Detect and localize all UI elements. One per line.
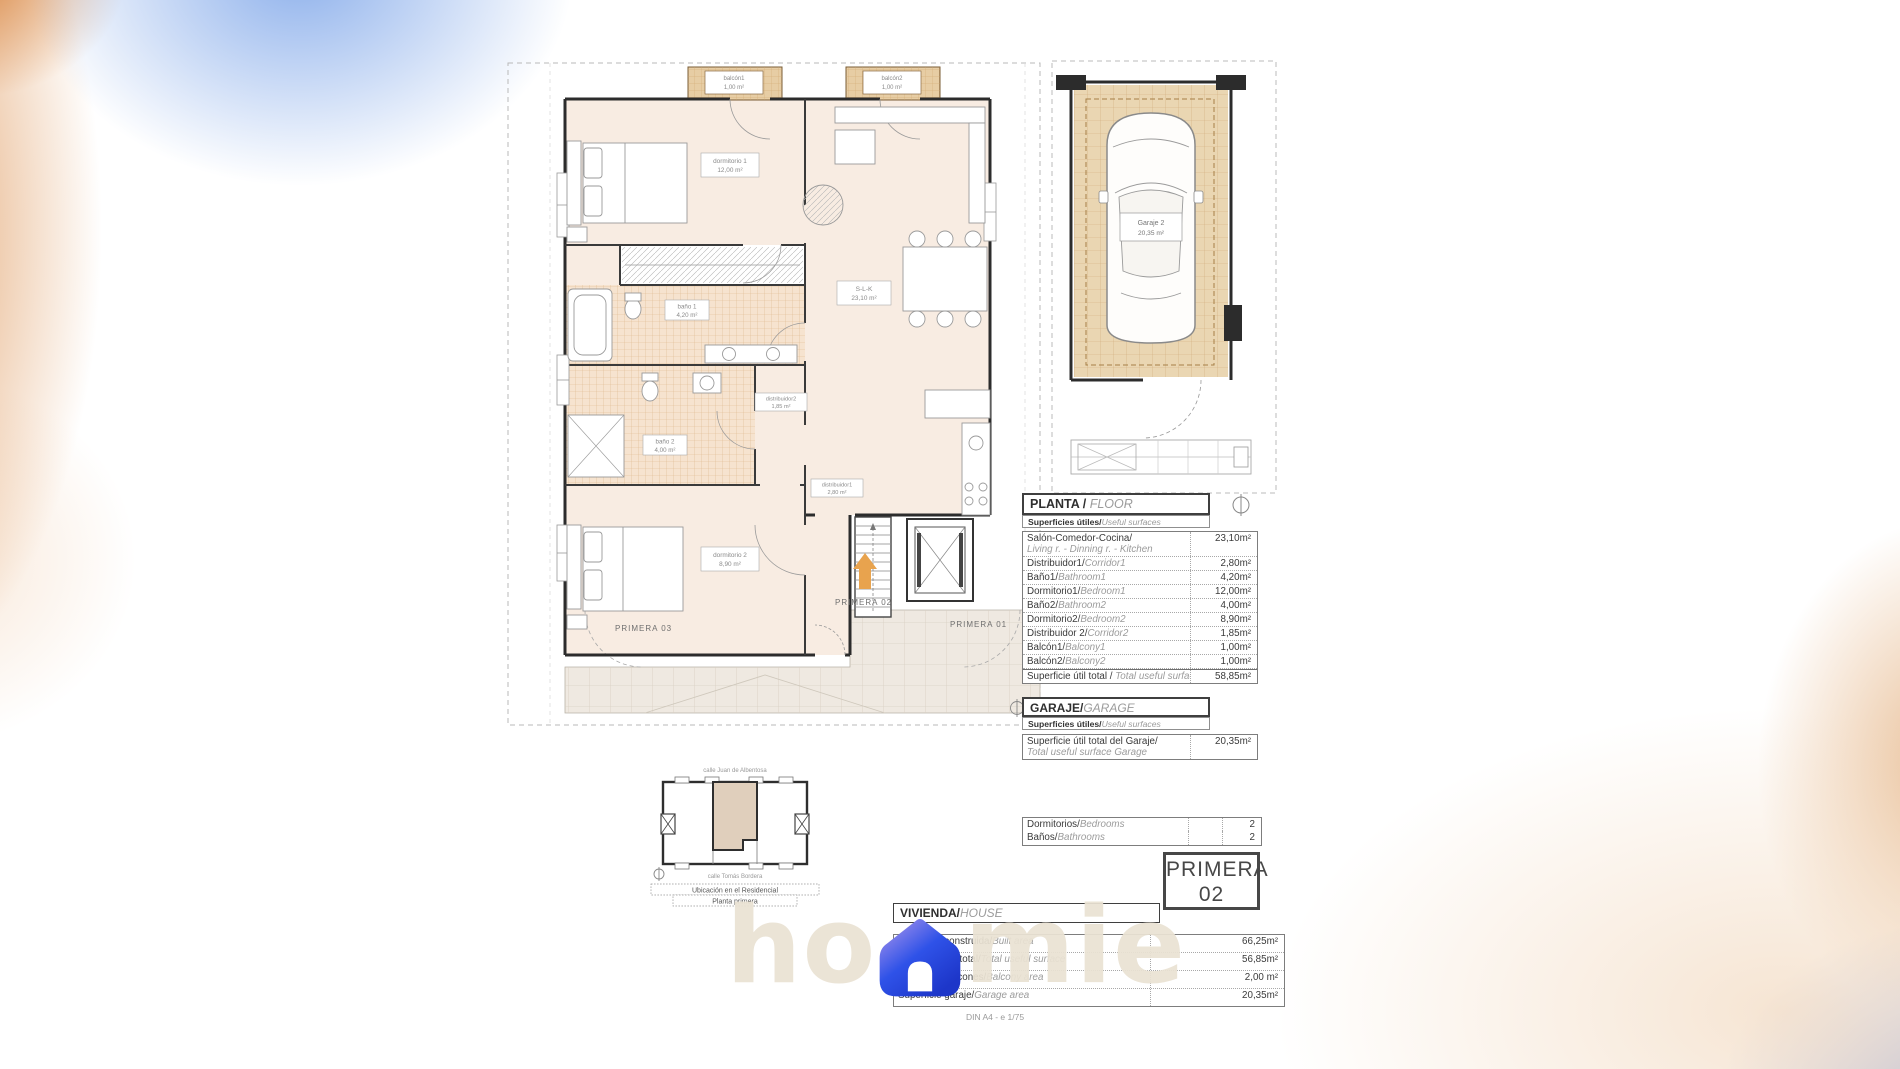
svg-text:4,00 m²: 4,00 m² [655, 447, 676, 454]
svg-text:1,00 m²: 1,00 m² [882, 85, 902, 91]
row-label-en: Balcony1 [1065, 642, 1105, 653]
svg-text:PRIMERA 03: PRIMERA 03 [615, 624, 672, 633]
svg-text:PRIMERA 01: PRIMERA 01 [950, 620, 1007, 629]
table-row: Superficie balcones/Balcony area 2,00 m² [894, 971, 1284, 989]
svg-text:PRIMERA 02: PRIMERA 02 [835, 598, 892, 607]
row-value: 1,00m² [1190, 655, 1257, 668]
bedrooms-count-row: Dormitorios/Bedrooms 2 [1022, 817, 1262, 832]
garaje-table: Superficie útil total del Garaje/ Total … [1022, 734, 1258, 760]
svg-text:1,85 m²: 1,85 m² [772, 404, 791, 410]
garage-plan-drawing: Garaje 2 20,35 m² [1048, 55, 1280, 500]
row-label-es: Superficie garaje/ [898, 990, 974, 1001]
street-label-top: calle Juan de Albentosa [703, 768, 767, 774]
planta-subtitle-en: Useful surfaces [1102, 517, 1161, 527]
row-label-es: Dormitorios/ [1027, 819, 1080, 830]
row-label-es: Superficie construida/ [898, 936, 992, 947]
row-label-es: Distribuidor1/ [1027, 558, 1085, 569]
caption-line-2: Planta primera [712, 899, 758, 906]
row-value: 2,00 m² [1150, 971, 1284, 988]
highlighted-unit [713, 782, 757, 850]
svg-text:balcón1: balcón1 [723, 76, 745, 82]
table-row: Dormitorio1/Bedroom1 12,00m² [1023, 585, 1257, 599]
svg-text:20,35 m²: 20,35 m² [1138, 230, 1165, 237]
svg-text:S-L-K: S-L-K [856, 286, 873, 293]
table-row: Balcón1/Balcony1 1,00m² [1023, 641, 1257, 655]
compass-icon [654, 867, 664, 881]
vivienda-table-header: VIVIENDA/HOUSE [893, 903, 1160, 923]
row-label-en: Living r. - Dinning r. - Kitchen [1027, 544, 1153, 555]
row-label-es: Superficie útil total/ [898, 954, 981, 965]
svg-text:23,10 m²: 23,10 m² [851, 295, 876, 302]
vivienda-title-en: HOUSE [960, 906, 1003, 920]
row-label-en: Corridor1 [1085, 558, 1126, 569]
garage-label: Garaje 2 20,35 m² [1120, 213, 1182, 241]
planta-title-es: PLANTA / [1030, 497, 1090, 511]
row-label-en: Bedroom1 [1080, 586, 1125, 597]
wardrobe [620, 245, 805, 285]
row-label-en: Bathroom1 [1058, 572, 1106, 583]
table-row: Baño1/Bathroom1 4,20m² [1023, 571, 1257, 585]
planta-subtitle-es: Superficies útiles/ [1028, 517, 1102, 527]
svg-text:2,80 m²: 2,80 m² [828, 490, 847, 496]
row-label-en: Corridor2 [1087, 628, 1128, 639]
row-label-en: Bedroom2 [1080, 614, 1125, 625]
planta-table-subtitle: Superficies útiles/Useful surfaces [1022, 515, 1210, 528]
compass-icon [1228, 492, 1254, 518]
table-row: Distribuidor1/Corridor1 2,80m² [1023, 557, 1257, 571]
unit-badge-number: 02 [1166, 882, 1257, 907]
svg-text:balcón2: balcón2 [881, 76, 903, 82]
row-value: 1,85m² [1190, 627, 1257, 640]
svg-text:4,20 m²: 4,20 m² [677, 312, 698, 319]
row-value: 23,10m² [1190, 532, 1257, 556]
svg-text:12,00 m²: 12,00 m² [717, 167, 742, 174]
svg-text:distribuidor2: distribuidor2 [766, 397, 796, 403]
table-row: Salón-Comedor-Cocina/ Living r. - Dinnin… [1023, 532, 1257, 557]
row-value: 4,20m² [1190, 571, 1257, 584]
planta-table-header: PLANTA / FLOOR [1022, 493, 1210, 515]
balcony-1: balcón1 1,00 m² [688, 67, 782, 100]
row-label-es: Superficie útil total / [1027, 671, 1115, 682]
garaje-subtitle-es: Superficies útiles/ [1028, 719, 1102, 729]
row-label-es: Baños/ [1027, 832, 1058, 843]
row-value: 20,35m² [1150, 989, 1284, 1006]
table-row: Superficie construida/Built area 66,25m² [894, 935, 1284, 953]
svg-text:dormitorio 1: dormitorio 1 [713, 158, 747, 165]
row-value: 56,85m² [1150, 953, 1284, 970]
row-label-es: Superficie balcones/ [898, 972, 986, 983]
table-row: Distribuidor 2/Corridor2 1,85m² [1023, 627, 1257, 641]
balcony-2: balcón2 1,00 m² [846, 67, 940, 100]
svg-text:8,90 m²: 8,90 m² [719, 561, 741, 568]
planta-table: Salón-Comedor-Cocina/ Living r. - Dinnin… [1022, 531, 1258, 684]
garaje-table-subtitle: Superficies útiles/Useful surfaces [1022, 717, 1210, 730]
table-row: Balcón2/Balcony2 1,00m² [1023, 655, 1257, 669]
vivienda-title-es: VIVIENDA/ [900, 906, 960, 920]
row-label-es: Balcón1/ [1027, 642, 1065, 653]
row-value: 20,35m² [1190, 735, 1257, 759]
elevator [907, 519, 973, 601]
row-value: 58,85m² [1190, 670, 1257, 683]
table-total-row: Superficie útil total / Total useful sur… [1023, 669, 1257, 683]
row-value: 12,00m² [1190, 585, 1257, 598]
table-row: Superficie útil total/Total useful surfa… [894, 953, 1284, 971]
garaje-title-es: GARAJE/ [1030, 701, 1083, 715]
table-row: Superficie útil total del Garaje/ Total … [1023, 735, 1257, 759]
row-label-en: Total useful surface [981, 954, 1066, 965]
svg-text:1,00 m²: 1,00 m² [724, 85, 744, 91]
row-label-en: Built area [992, 936, 1033, 947]
svg-text:distribuidor1: distribuidor1 [822, 483, 852, 489]
row-value: 8,90m² [1190, 613, 1257, 626]
caption-line-1: Ubicación en el Residencial [692, 888, 778, 895]
row-label-es: Baño2/ [1027, 600, 1058, 611]
table-row: Baño2/Bathroom2 4,00m² [1023, 599, 1257, 613]
row-label-es: Dormitorio1/ [1027, 586, 1080, 597]
row-label-en: Bathroom2 [1058, 600, 1106, 611]
row-label-es: Salón-Comedor-Cocina/ [1027, 533, 1132, 544]
row-label-es: Distribuidor 2/ [1027, 628, 1087, 639]
row-value: 1,00m² [1190, 641, 1257, 654]
row-label-es: Baño1/ [1027, 572, 1058, 583]
row-label-en: Total useful surface Garage [1027, 747, 1147, 758]
row-label-es: Balcón2/ [1027, 656, 1065, 667]
floor-plan-drawing: balcón1 1,00 m² balcón2 1,00 m² [505, 55, 1045, 735]
garaje-table-header: GARAJE/GARAGE [1022, 697, 1210, 717]
row-label-es: Dormitorio2/ [1027, 614, 1080, 625]
row-label-en: Bathrooms [1058, 832, 1105, 843]
scale-note: DIN A4 - e 1/75 [905, 1012, 1085, 1022]
garage-door-driveway [1071, 380, 1251, 474]
row-value: 66,25m² [1150, 935, 1284, 952]
svg-text:baño 1: baño 1 [678, 304, 697, 311]
row-label-en: Balcony2 [1065, 656, 1105, 667]
svg-text:baño 2: baño 2 [656, 439, 675, 446]
row-label-en: Balcony area [986, 972, 1043, 983]
page: balcón1 1,00 m² balcón2 1,00 m² [0, 0, 1900, 1069]
table-row: Dormitorio2/Bedroom2 8,90m² [1023, 613, 1257, 627]
row-value: 4,00m² [1190, 599, 1257, 612]
row-label-en: Garage area [974, 990, 1029, 1001]
vivienda-table: Superficie construida/Built area 66,25m²… [893, 934, 1285, 1007]
garaje-title-en: GARAGE [1083, 701, 1134, 715]
row-label-en: Bedrooms [1080, 819, 1125, 830]
row-value: 2,80m² [1190, 557, 1257, 570]
table-row: Superficie garaje/Garage area 20,35m² [894, 989, 1284, 1006]
planta-title-en: FLOOR [1090, 497, 1133, 511]
street-label-bottom: calle Tomás Bordera [708, 874, 763, 880]
bathrooms-count-row: Baños/Bathrooms 2 [1022, 831, 1262, 846]
row-label-en: Total useful surface [1115, 671, 1190, 682]
location-plan: calle Juan de Albentosa calle Tomás Bord… [645, 762, 825, 910]
svg-text:Garaje 2: Garaje 2 [1138, 220, 1165, 227]
svg-text:dormitorio 2: dormitorio 2 [713, 552, 747, 559]
row-value: 2 [1222, 831, 1261, 845]
row-value: 2 [1222, 818, 1261, 831]
unit-badge: PRIMERA 02 [1163, 852, 1260, 910]
unit-badge-floor: PRIMERA [1166, 857, 1257, 882]
row-label-es: Superficie útil total del Garaje/ [1027, 736, 1158, 747]
garaje-subtitle-en: Useful surfaces [1102, 719, 1161, 729]
